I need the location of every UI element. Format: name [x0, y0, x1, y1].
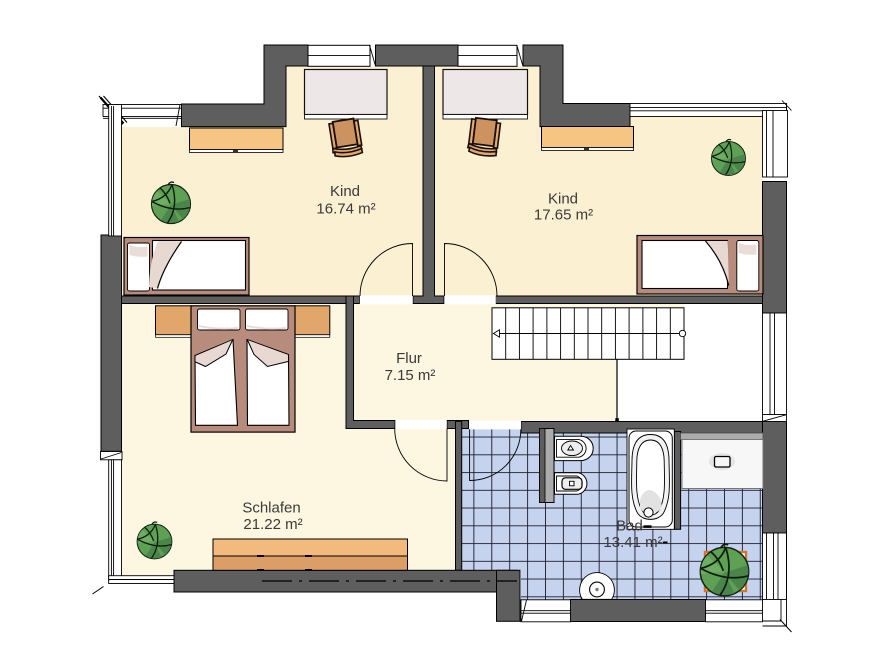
svg-text:Kind: Kind — [548, 191, 578, 208]
svg-text:Kind: Kind — [330, 183, 360, 200]
svg-text:7.15 m²: 7.15 m² — [385, 367, 436, 384]
svg-text:17.65 m²: 17.65 m² — [534, 207, 593, 224]
svg-text:13.41 m²: 13.41 m² — [603, 534, 662, 551]
svg-text:16.74 m²: 16.74 m² — [316, 201, 375, 218]
svg-text:Flur: Flur — [396, 350, 422, 367]
svg-text:Schlafen: Schlafen — [242, 500, 300, 517]
svg-text:21.22 m²: 21.22 m² — [243, 516, 302, 533]
svg-text:Bad: Bad — [616, 518, 643, 535]
